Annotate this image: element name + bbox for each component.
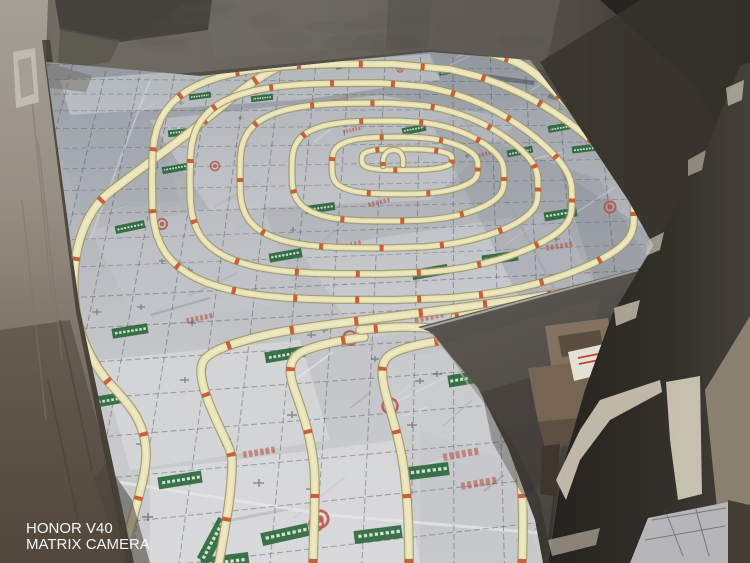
svg-text:HONOR V40: HONOR V40 [26, 520, 113, 537]
svg-text:MATRIX CAMERA: MATRIX CAMERA [26, 536, 150, 553]
